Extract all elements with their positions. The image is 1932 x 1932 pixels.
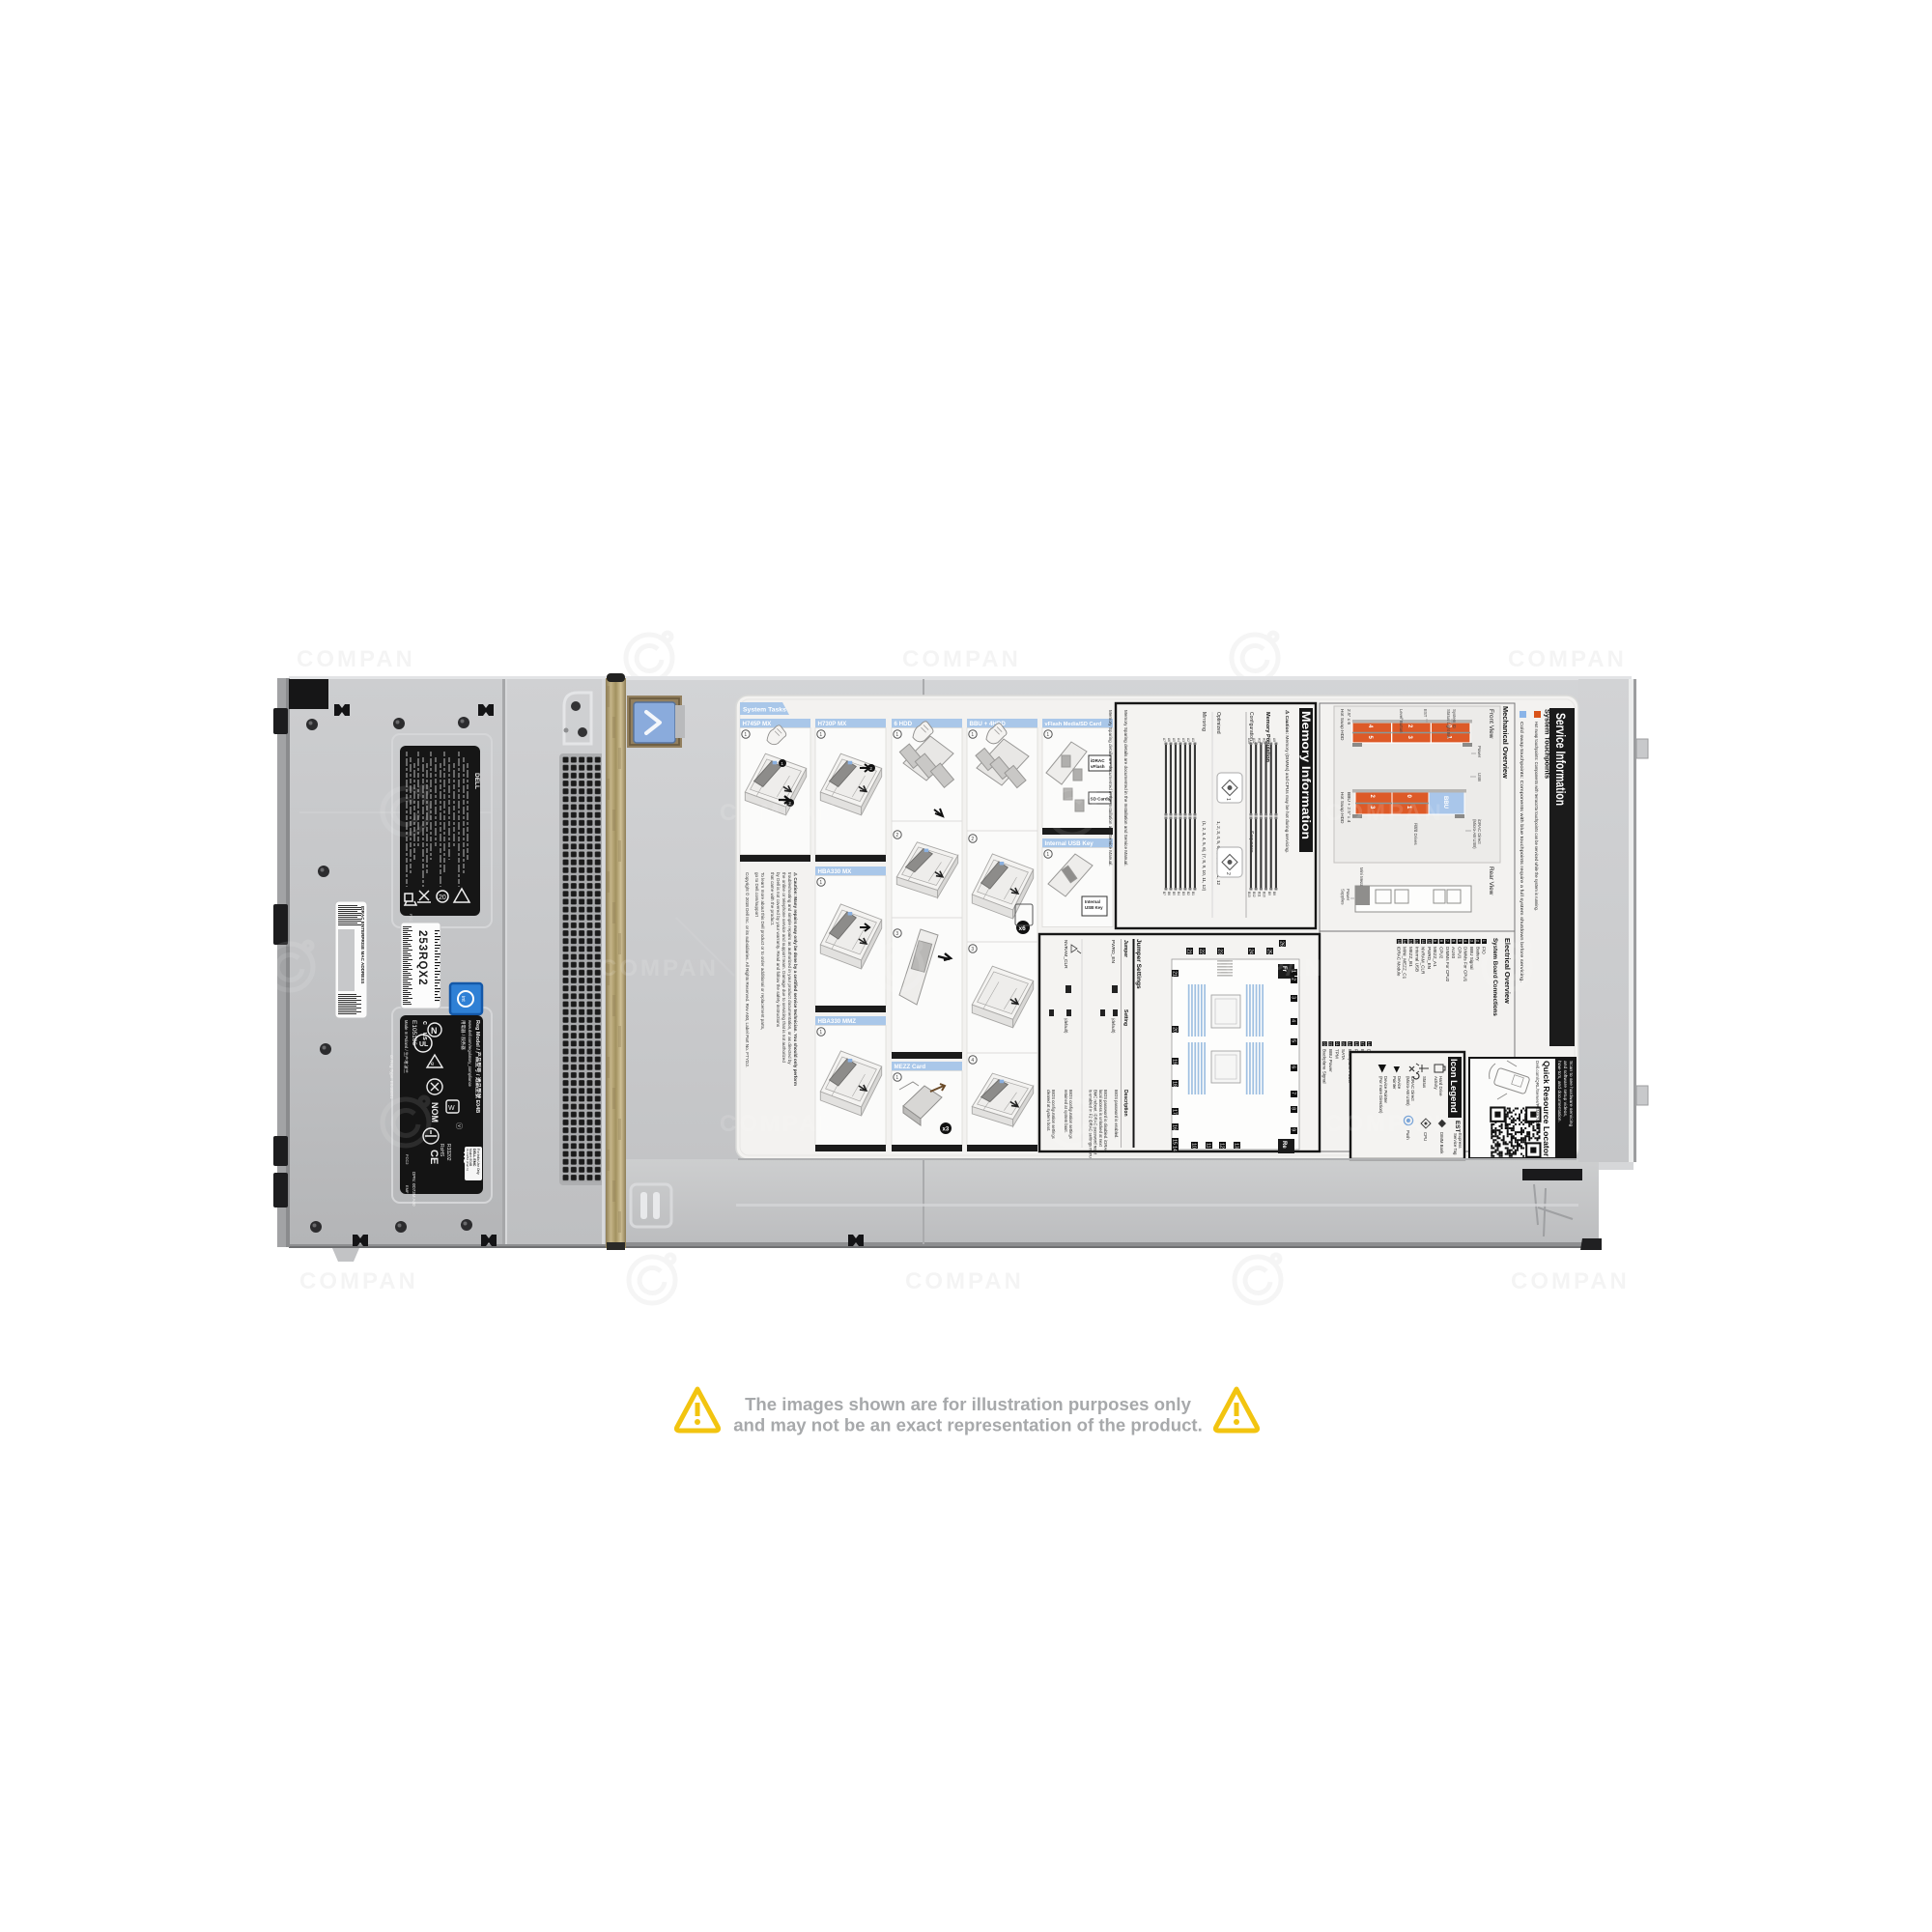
svg-text:6 HDD: 6 HDD	[895, 721, 913, 727]
svg-text:用電器 / 服务器: 用電器 / 服务器	[460, 1020, 467, 1050]
svg-text:9: 9	[1291, 1128, 1296, 1131]
svg-text:DIMMs For CPU1: DIMMs For CPU1	[1463, 947, 1468, 982]
svg-text:Setting: Setting	[1122, 1009, 1128, 1026]
svg-text:23: 23	[1322, 1041, 1327, 1046]
svg-text:SATA: SATA	[1341, 1049, 1346, 1061]
svg-text:DIMMs For CPU2: DIMMs For CPU2	[1445, 947, 1450, 982]
svg-text:253RQX2: 253RQX2	[416, 930, 428, 986]
svg-text:x3: x3	[943, 1127, 950, 1133]
svg-text:COMPAN: COMPAN	[720, 1111, 838, 1137]
svg-text:Front View: Front View	[1488, 709, 1494, 739]
svg-text:(1, 2, 3, 4, 5, 6), (7, 8, 9,: (1, 2, 3, 4, 5, 6), (7, 8, 9, 10, 11, 12…	[1202, 821, 1207, 892]
svg-text:2: 2	[895, 833, 898, 838]
svg-text:B3: B3	[1181, 892, 1185, 895]
svg-text:A4: A4	[1177, 738, 1180, 742]
svg-text:B9: B9	[1267, 892, 1271, 895]
svg-text:1: 1	[819, 732, 822, 738]
svg-text:Battery: Battery	[1475, 947, 1480, 961]
svg-text:ⓥ: ⓥ	[455, 1122, 463, 1129]
svg-text:Hot Swap HDD: Hot Swap HDD	[1339, 709, 1345, 741]
svg-text:COMPAN: COMPAN	[600, 955, 719, 981]
svg-text:COMPAN: COMPAN	[297, 646, 415, 672]
svg-text:24: 24	[1248, 949, 1254, 954]
svg-text:int: int	[460, 996, 466, 1002]
svg-text:System Touchpoints: System Touchpoints	[1544, 709, 1552, 779]
svg-text:20: 20	[1172, 1027, 1178, 1033]
svg-text:18: 18	[1354, 1041, 1359, 1046]
svg-text:A8: A8	[1272, 738, 1276, 742]
svg-text:A6: A6	[1167, 738, 1171, 742]
svg-text:19: 19	[1172, 1059, 1178, 1065]
svg-text:(default): (default)	[1111, 1018, 1116, 1034]
svg-text:A1: A1	[1191, 738, 1195, 742]
svg-text:3: 3	[895, 931, 898, 937]
svg-text:(Micro-AB USB): (Micro-AB USB)	[1472, 819, 1477, 849]
svg-text:12: 12	[1415, 940, 1420, 945]
svg-text:B12: B12	[1252, 892, 1256, 897]
svg-text:A7: A7	[1162, 738, 1166, 742]
svg-text:Service Information: Service Information	[1553, 713, 1568, 806]
svg-text:1: 1	[819, 1030, 822, 1036]
svg-text:MINI_MEZZ_C1: MINI_MEZZ_C1	[1403, 947, 1407, 980]
svg-text:the online or telephone servic: the online or telephone service and supp…	[781, 872, 786, 1063]
svg-text:21: 21	[1335, 1041, 1340, 1046]
svg-text:COMPAN: COMPAN	[299, 1268, 418, 1294]
svg-text:vFlash Media/SD Card: vFlash Media/SD Card	[1045, 722, 1102, 727]
svg-text:Re: Re	[1281, 1141, 1287, 1149]
svg-text:MEZZ_A1: MEZZ_A1	[1433, 947, 1437, 967]
svg-text:7: 7	[1291, 1092, 1296, 1094]
svg-text:22: 22	[1328, 1041, 1333, 1046]
svg-text:B7: B7	[1162, 892, 1166, 895]
svg-text:Icon Legend: Icon Legend	[1448, 1059, 1459, 1113]
svg-text:PWRD_EN: PWRD_EN	[1427, 947, 1432, 969]
svg-text:R33202: R33202	[445, 1144, 451, 1161]
svg-text:2: 2	[1225, 872, 1231, 875]
svg-text:Electrical Overview: Electrical Overview	[1503, 938, 1512, 1004]
svg-text:IDRAC ENTERPRISE MAC ADDRESS: IDRAC ENTERPRISE MAC ADDRESS	[360, 906, 365, 983]
svg-text:iDRAC Module: iDRAC Module	[1396, 947, 1401, 977]
svg-text:vFlash: vFlash	[1091, 764, 1105, 769]
svg-text:NOM: NOM	[430, 1102, 440, 1122]
svg-text:1: 1	[1046, 852, 1049, 858]
svg-text:1: 1	[895, 732, 898, 738]
svg-text:NVRAM_CLR: NVRAM_CLR	[1421, 947, 1426, 975]
svg-text:H730P MX: H730P MX	[818, 721, 848, 727]
svg-text:that came with the product.: that came with the product.	[770, 872, 775, 925]
svg-text:A9: A9	[1267, 738, 1271, 742]
svg-text:B5: B5	[1172, 892, 1176, 895]
svg-text:USB Key: USB Key	[1085, 905, 1103, 910]
svg-text:1: 1	[819, 880, 822, 886]
svg-text:1: 1	[971, 732, 974, 738]
svg-text:Internal USB Key: Internal USB Key	[1045, 840, 1094, 847]
svg-text:1: 1	[1225, 798, 1231, 801]
svg-text:2: 2	[971, 837, 974, 842]
svg-text:18: 18	[1172, 1081, 1178, 1087]
svg-text:troubleshooting and simple rep: troubleshooting and simple repairs as au…	[787, 872, 792, 1065]
svg-text:A2: A2	[1186, 738, 1190, 742]
svg-text:Made In Poland / 生产地:波兰: Made In Poland / 生产地:波兰	[403, 1020, 410, 1073]
svg-text:17: 17	[1360, 1041, 1365, 1046]
svg-text:TPM: TPM	[1335, 1049, 1340, 1059]
svg-text:Internal USB: Internal USB	[1414, 947, 1419, 972]
svg-text:UL: UL	[419, 1041, 429, 1048]
svg-text:(For more Direction): (For more Direction)	[1378, 1076, 1383, 1114]
svg-text:c us: c us	[421, 1021, 428, 1040]
svg-text:or Reg Type: E04B001: or Reg Type: E04B001	[389, 1055, 394, 1099]
svg-text:MEZZ Card: MEZZ Card	[895, 1064, 926, 1070]
svg-text:www.dell.com/regulatory_compli: www.dell.com/regulatory_compliance	[468, 1020, 472, 1088]
svg-text:COMPAN: COMPAN	[1206, 955, 1324, 981]
svg-text:21: 21	[1172, 971, 1178, 977]
svg-text:4: 4	[971, 1058, 974, 1064]
svg-text:FCC2: FCC2	[405, 1154, 410, 1165]
svg-text:20: 20	[439, 895, 446, 901]
svg-text:COMPAN: COMPAN	[1511, 1268, 1630, 1294]
svg-text:22: 22	[1199, 949, 1205, 954]
svg-text:A13: A13	[1247, 738, 1251, 744]
svg-text:14: 14	[1172, 1146, 1178, 1151]
svg-text:CPU2: CPU2	[1439, 947, 1444, 959]
svg-text:PWRD_EN: PWRD_EN	[1110, 940, 1116, 964]
svg-text:10: 10	[1427, 940, 1432, 945]
svg-text:how-to’s, and documentation.: how-to’s, and documentation.	[1556, 1061, 1562, 1122]
svg-text:H745P MX: H745P MX	[743, 721, 773, 727]
svg-text:1: 1	[744, 732, 747, 738]
svg-text:A3: A3	[1181, 738, 1185, 742]
svg-text:EST: EST	[1454, 1121, 1461, 1133]
svg-text:A12: A12	[1252, 738, 1256, 744]
svg-text:Lever Button: Lever Button	[1399, 709, 1404, 733]
svg-text:BBU Power: BBU Power	[1328, 1049, 1333, 1072]
svg-text:System Tasks: System Tasks	[743, 707, 786, 714]
svg-text:25: 25	[1266, 949, 1272, 954]
svg-text:go to Dell.com/support: go to Dell.com/support	[754, 872, 759, 918]
svg-text:EST: EST	[1423, 709, 1428, 718]
svg-text:B13: B13	[1247, 892, 1251, 897]
svg-text:Memory Sparing details are doc: Memory Sparing details are documented in…	[1123, 710, 1128, 867]
svg-text:COMPAN: COMPAN	[1508, 646, 1627, 672]
svg-text:Status Light Bar: Status Light Bar	[1446, 709, 1451, 739]
svg-text:A5: A5	[1172, 738, 1176, 742]
svg-text:3: 3	[971, 947, 974, 952]
svg-text:Copyright © 2018 Dell Inc. or: Copyright © 2018 Dell Inc. or its subsid…	[745, 872, 751, 1067]
svg-text:Power: Power	[1346, 889, 1350, 901]
svg-text:A10: A10	[1263, 738, 1266, 744]
svg-text:16: 16	[1172, 1124, 1178, 1130]
svg-text:15: 15	[1172, 1139, 1178, 1145]
svg-text:Status: Status	[1422, 1076, 1427, 1088]
svg-text:USB: USB	[1477, 773, 1482, 781]
svg-text:Jumper Settings: Jumper Settings	[1135, 939, 1142, 989]
svg-text:⚠ Caution: Memory (DIMMs) and: ⚠ Caution: Memory (DIMMs) and CPUs may b…	[1284, 710, 1290, 853]
svg-text:E105106: E105106	[411, 1020, 417, 1045]
svg-text:17: 17	[1172, 1109, 1178, 1115]
svg-text:B10: B10	[1263, 892, 1266, 897]
svg-text:23: 23	[1217, 949, 1223, 954]
svg-text:5: 5	[1291, 1039, 1296, 1042]
svg-text:⚠ Caution: Many repairs may o: ⚠ Caution: Many repairs may only be done…	[793, 872, 798, 1086]
svg-text:EMF: EMF	[405, 1185, 410, 1194]
svg-text:B1: B1	[1191, 892, 1195, 895]
svg-text:HBA330 MX: HBA330 MX	[818, 868, 853, 875]
svg-text:iDRAC: iDRAC	[1091, 758, 1105, 763]
svg-text:Scan to see hardware servicing: Scan to see hardware servicing	[1568, 1061, 1574, 1127]
svg-text:13: 13	[1408, 940, 1413, 945]
svg-text:N: N	[431, 1026, 438, 1036]
svg-text:A11: A11	[1257, 738, 1261, 744]
svg-text:FCCI: FCCI	[409, 914, 413, 923]
svg-text:x6: x6	[1019, 925, 1027, 932]
svg-text:MEZZ_B1: MEZZ_B1	[1408, 947, 1413, 967]
svg-text:The images shown are for illus: The images shown are for illustration pu…	[745, 1394, 1191, 1414]
svg-text:(default): (default)	[1064, 1018, 1068, 1034]
svg-text:and may not be an exact repres: and may not be an exact representation o…	[733, 1415, 1203, 1435]
svg-text:B4: B4	[1177, 892, 1180, 895]
svg-text:13: 13	[1234, 1143, 1239, 1149]
svg-text:Memory Information: Memory Information	[1299, 711, 1311, 839]
svg-text:6: 6	[1291, 1065, 1296, 1068]
svg-text:by Dell is not covered by your: by Dell is not covered by your warranty.…	[776, 872, 781, 1028]
svg-text:Memory Sparing details are doc: Memory Sparing details are documented in…	[1108, 710, 1113, 867]
svg-text:COMPAN: COMPAN	[1325, 800, 1444, 826]
svg-text:DELL: DELL	[473, 773, 480, 789]
svg-text:Mirroring: Mirroring	[1201, 712, 1207, 731]
svg-text:HBA330 MMZ: HBA330 MMZ	[818, 1018, 857, 1025]
svg-text:COMPAN: COMPAN	[1325, 1111, 1444, 1137]
svg-text:DPN: 0D73M A00: DPN: 0D73M A00	[412, 1172, 416, 1207]
svg-text:8: 8	[1291, 1107, 1296, 1110]
svg-text:Activity: Activity	[1434, 1076, 1438, 1090]
svg-text:Backplane Signal: Backplane Signal	[1321, 1049, 1326, 1084]
svg-text:4: 4	[1291, 1019, 1296, 1022]
svg-text:COMPAN: COMPAN	[905, 1268, 1024, 1294]
svg-text:Rear View: Rear View	[1488, 867, 1494, 895]
svg-text:Power: Power	[1477, 746, 1482, 758]
svg-text:Internal: Internal	[1085, 899, 1100, 904]
svg-text:Service Tag: Service Tag	[1453, 1133, 1458, 1155]
svg-text:Reg Model / 产品型号 / 透品型號 E04B: Reg Model / 产品型号 / 透品型號 E04B	[474, 1020, 482, 1113]
svg-text:Configuration: Configuration	[1248, 712, 1254, 741]
svg-text:B11: B11	[1257, 892, 1261, 897]
svg-text:Pointer: Pointer	[1392, 1076, 1397, 1090]
svg-text:11: 11	[1206, 1143, 1211, 1148]
svg-text:Hot swap touchpoints: Compone: Hot swap touchpoints: Components with te…	[1533, 722, 1539, 911]
svg-text:CPU1: CPU1	[1457, 947, 1462, 959]
svg-text:Optimized: Optimized	[1215, 712, 1221, 734]
svg-text:3: 3	[1291, 996, 1296, 999]
svg-text:1: 1	[895, 1075, 898, 1081]
svg-text:AUX0: AUX0	[1451, 947, 1456, 958]
svg-text:14: 14	[1403, 940, 1407, 945]
svg-text:B8: B8	[1272, 892, 1276, 895]
svg-text:Mini Mezz: Mini Mezz	[1359, 867, 1364, 886]
svg-text:Jumper: Jumper	[1122, 940, 1128, 957]
svg-text:W: W	[448, 1105, 455, 1112]
svg-text:21: 21	[1186, 949, 1192, 954]
svg-text:Mechanical Overview: Mechanical Overview	[1501, 706, 1510, 779]
svg-text:(Micro-AB USB): (Micro-AB USB)	[1406, 1076, 1410, 1106]
svg-text:Quick Resource Locator: Quick Resource Locator	[1542, 1061, 1551, 1157]
svg-text:10: 10	[1191, 1143, 1197, 1149]
svg-text:COMPAN: COMPAN	[720, 800, 838, 826]
svg-text:19: 19	[1348, 1041, 1352, 1046]
svg-text:Description: Description	[1122, 1090, 1128, 1117]
svg-text:B6: B6	[1167, 892, 1171, 895]
svg-text:and software setup videos,: and software setup videos,	[1562, 1061, 1568, 1117]
svg-text:12: 12	[1219, 1143, 1225, 1149]
svg-text:1: 1	[1046, 732, 1049, 738]
svg-text:System ID: System ID	[1452, 709, 1457, 728]
svg-text:NVRAM_CLR: NVRAM_CLR	[1063, 940, 1068, 969]
svg-text:B2: B2	[1186, 892, 1190, 895]
svg-text:16: 16	[1367, 1041, 1372, 1046]
svg-text:IS 13252 (Part 1): IS 13252 (Part 1)	[466, 1149, 469, 1171]
svg-text:COMPAN: COMPAN	[902, 646, 1021, 672]
svg-text:20: 20	[1342, 1041, 1347, 1046]
svg-text:26: 26	[1279, 941, 1285, 947]
svg-text:2.5” x 6: 2.5” x 6	[1346, 709, 1351, 724]
svg-text:To learn more about this Dell: To learn more about this Dell product or…	[760, 872, 765, 1030]
svg-text:CE: CE	[428, 1150, 440, 1164]
svg-text:BBU Signal: BBU Signal	[1469, 947, 1474, 970]
svg-text:BIOS password is enabled.: BIOS password is enabled.	[1114, 1090, 1119, 1139]
svg-text:Supplies: Supplies	[1341, 889, 1346, 904]
svg-text:15: 15	[1397, 940, 1402, 945]
